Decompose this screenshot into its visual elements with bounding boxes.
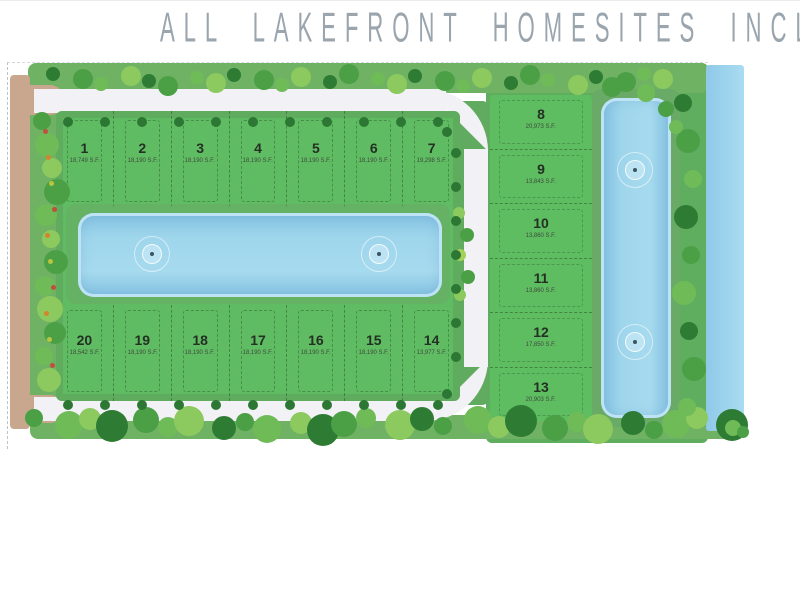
lot-cell-12: 12 17,850 S.F. [490, 312, 592, 367]
lot-number: 19 [135, 333, 151, 347]
lot-cell-5: 5 18,190 S.F. [286, 111, 344, 207]
lot-cell-20: 20 18,542 S.F. [56, 305, 113, 401]
fountain-jet-icon [377, 252, 381, 256]
fountain-ring-icon [142, 244, 162, 264]
lot-number: 11 [534, 271, 549, 285]
lot-size: 18,190 S.F. [243, 158, 273, 165]
loop-road-north [34, 89, 446, 113]
fountain-ring-icon [625, 160, 645, 180]
lot-number: 14 [424, 333, 440, 347]
lot-size: 18,190 S.F. [243, 350, 273, 357]
lot-size: 18,542 S.F. [69, 350, 99, 357]
fountain-jet-icon [633, 340, 637, 344]
lot-column-east: 8 20,973 S.F. 9 13,843 S.F. 10 13,860 S.… [490, 95, 592, 421]
fountain-icon [361, 236, 397, 272]
fountain-icon [134, 236, 170, 272]
lot-number: 13 [533, 380, 549, 394]
fountain-icon [617, 152, 653, 188]
lot-number: 12 [533, 325, 549, 339]
lot-size: 18,749 S.F. [69, 158, 99, 165]
lot-size: 13,843 S.F. [526, 178, 556, 185]
lot-cell-2: 2 18,190 S.F. [113, 111, 171, 207]
lot-size: 13,977 S.F. [417, 350, 447, 357]
lot-size: 13,860 S.F. [526, 287, 556, 294]
lot-number: 15 [366, 333, 382, 347]
boundary-lake [706, 65, 744, 431]
lot-size: 18,190 S.F. [359, 350, 389, 357]
lot-number: 5 [312, 141, 320, 155]
lot-number: 18 [192, 333, 208, 347]
lot-cell-16: 16 18,190 S.F. [286, 305, 344, 401]
west-path-tan [10, 75, 30, 429]
lot-cell-4: 4 18,190 S.F. [229, 111, 287, 207]
lot-row-north: 1 18,749 S.F. 2 18,190 S.F. 3 18,190 S.F… [56, 111, 460, 207]
fountain-ring-icon [625, 332, 645, 352]
lot-size: 18,190 S.F. [127, 350, 157, 357]
lot-number: 2 [138, 141, 146, 155]
site-plan-map: 1 18,749 S.F. 2 18,190 S.F. 3 18,190 S.F… [0, 1, 800, 601]
lot-size: 17,850 S.F. [526, 342, 556, 349]
lot-number: 4 [254, 141, 262, 155]
lot-size: 18,190 S.F. [127, 158, 157, 165]
lot-cell-13: 13 20,903 S.F. [490, 367, 592, 422]
lot-cell-8: 8 20,973 S.F. [490, 95, 592, 149]
lot-size: 20,903 S.F. [526, 396, 556, 403]
lot-cell-7: 7 19,298 S.F. [402, 111, 460, 207]
lot-cell-18: 18 18,190 S.F. [171, 305, 229, 401]
lot-size: 19,298 S.F. [417, 158, 447, 165]
lot-size: 18,190 S.F. [301, 158, 331, 165]
lot-size: 18,190 S.F. [185, 350, 215, 357]
lot-cell-3: 3 18,190 S.F. [171, 111, 229, 207]
lot-number: 10 [533, 216, 549, 230]
lot-number: 1 [81, 141, 89, 155]
lot-number: 3 [196, 141, 204, 155]
fountain-jet-icon [633, 168, 637, 172]
lot-cell-19: 19 18,190 S.F. [113, 305, 171, 401]
lot-cell-10: 10 13,860 S.F. [490, 203, 592, 258]
lot-number: 17 [250, 333, 266, 347]
lot-size: 13,860 S.F. [526, 233, 556, 240]
lot-cell-1: 1 18,749 S.F. [56, 111, 113, 207]
fountain-icon [617, 324, 653, 360]
fountain-ring-icon [369, 244, 389, 264]
lot-number: 16 [308, 333, 324, 347]
lot-size: 20,973 S.F. [526, 124, 556, 131]
lot-number: 20 [77, 333, 93, 347]
lot-cell-9: 9 13,843 S.F. [490, 149, 592, 204]
lot-cell-17: 17 18,190 S.F. [229, 305, 287, 401]
lot-number: 6 [370, 141, 378, 155]
east-lake [601, 98, 671, 418]
lot-cell-11: 11 13,860 S.F. [490, 258, 592, 313]
lot-number: 7 [428, 141, 436, 155]
lot-size: 18,190 S.F. [301, 350, 331, 357]
lot-cell-15: 15 18,190 S.F. [344, 305, 402, 401]
lot-number: 9 [537, 162, 545, 176]
lot-size: 18,190 S.F. [185, 158, 215, 165]
loop-road-east [464, 149, 488, 367]
lot-number: 8 [537, 107, 545, 121]
fountain-jet-icon [150, 252, 154, 256]
lot-cell-6: 6 18,190 S.F. [344, 111, 402, 207]
lot-size: 18,190 S.F. [359, 158, 389, 165]
lot-cell-14: 14 13,977 S.F. [402, 305, 460, 401]
lot-row-south: 20 18,542 S.F. 19 18,190 S.F. 18 18,190 … [56, 305, 460, 401]
